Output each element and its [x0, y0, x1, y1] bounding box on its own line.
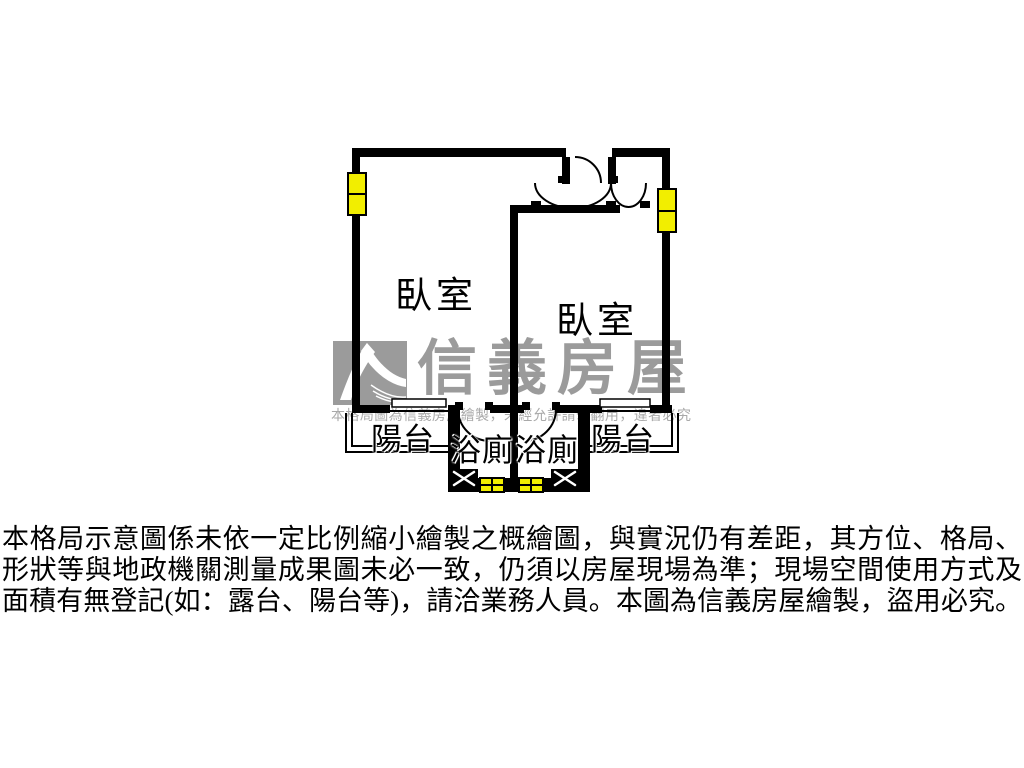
floor-plan-page: 信義房屋 本格局圖為信義房屋繪製，未經允許請勿翻用，違者必究 — [0, 0, 1024, 768]
foyer-door-swing-left-icon — [535, 183, 611, 208]
entry-door-swing-icon — [575, 157, 601, 183]
sliding-door-right-icon — [600, 399, 650, 411]
room-label-bedroom-left: 臥室 — [376, 265, 496, 319]
room-label-balcony-right: 陽台 — [563, 414, 683, 459]
disclaimer: 本格局示意圖係未依一定比例縮小繪製之概繪圖，與實況仍有差距，其方位、格局、 形狀… — [2, 524, 1022, 617]
vent-icon-right — [551, 469, 579, 488]
bath-window-left-icon — [480, 478, 504, 492]
disclaimer-line: 本格局示意圖係未依一定比例縮小繪製之概繪圖，與實況仍有差距，其方位、格局、 — [2, 524, 1022, 555]
window-left-icon — [348, 173, 366, 215]
floor-plan-drawing — [0, 0, 1024, 768]
bath-window-right-icon — [519, 478, 543, 492]
disclaimer-line: 形狀等與地政機關測量成果圖未必一致，仍須以房屋現場為準；現場空間使用方式及 — [2, 555, 1022, 586]
disclaimer-line: 面積有無登記(如：露台、陽台等)，請洽業務人員。本圖為信義房屋繪製，盜用必究。 — [2, 586, 1022, 617]
sliding-door-left-icon — [390, 399, 448, 411]
room-label-bedroom-right: 臥室 — [537, 290, 657, 344]
vent-icon-left — [450, 469, 478, 488]
window-right-icon — [658, 189, 676, 232]
